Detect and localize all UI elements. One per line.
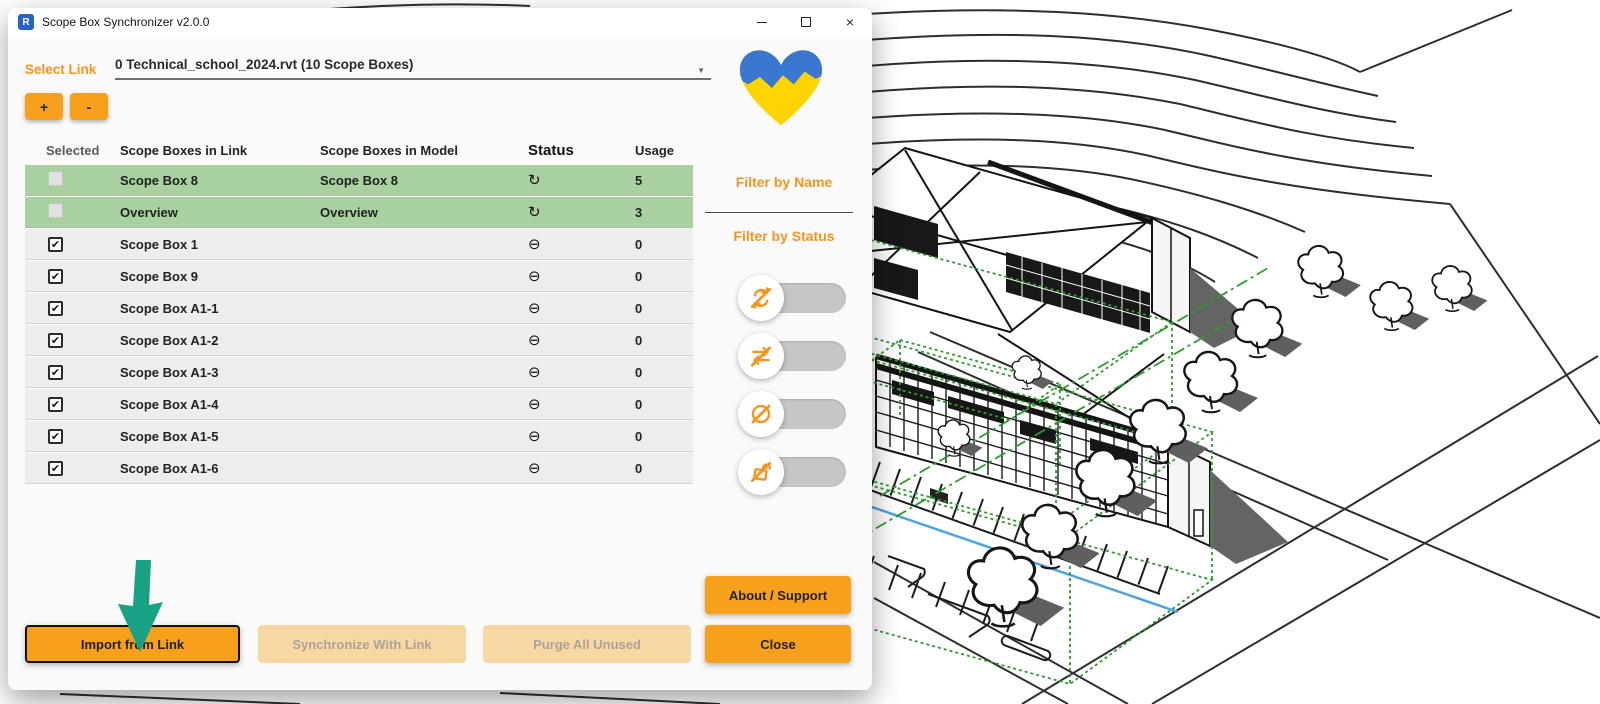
scope-box-table: Selected Scope Boxes in Link Scope Boxes…: [25, 135, 693, 485]
scope-box-link-name: Scope Box 8: [103, 173, 308, 188]
row-checkbox[interactable]: ✔: [48, 333, 63, 348]
toggle-thumb[interactable]: [738, 275, 784, 321]
table-row[interactable]: ✔Scope Box A1-5⊖0: [25, 421, 693, 452]
filter-not-visible-toggle[interactable]: [738, 391, 850, 437]
not-in-model-status-icon: ⊖: [483, 331, 573, 349]
toggle-thumb[interactable]: [738, 333, 784, 379]
row-checkbox[interactable]: ✔: [48, 397, 63, 412]
add-link-button[interactable]: +: [25, 93, 63, 120]
annotation-arrow-icon: [106, 560, 176, 656]
scope-box-link-name: Scope Box A1-4: [103, 397, 308, 412]
usage-count: 0: [573, 237, 693, 252]
scope-box-link-name: Overview: [103, 205, 308, 220]
window-title: Scope Box Synchronizer v2.0.0: [42, 15, 209, 29]
scope-box-model-name: Scope Box 8: [308, 173, 483, 188]
row-checkbox[interactable]: ✔: [48, 301, 63, 316]
table-row[interactable]: ✔Scope Box A1-4⊖0: [25, 389, 693, 420]
table-row[interactable]: ✔Scope Box A1-1⊖0: [25, 293, 693, 324]
minimize-button[interactable]: [740, 8, 784, 36]
scope-box-link-name: Scope Box A1-6: [103, 461, 308, 476]
select-link-label: Select Link: [25, 62, 96, 77]
scope-box-link-name: Scope Box 1: [103, 237, 308, 252]
row-checkbox[interactable]: ✔: [48, 237, 63, 252]
row-checkbox[interactable]: ✔: [48, 461, 63, 476]
filter-by-name-label[interactable]: Filter by Name: [705, 174, 863, 190]
not-in-model-status-icon: ⊖: [483, 267, 573, 285]
column-header-model: Scope Boxes in Model: [308, 143, 483, 158]
table-row[interactable]: ✔Scope Box 1⊖0: [25, 229, 693, 260]
usage-count: 0: [573, 461, 693, 476]
about-support-button[interactable]: About / Support: [705, 576, 851, 614]
scope-box-model-name: Overview: [308, 205, 483, 220]
usage-count: 0: [573, 333, 693, 348]
table-row[interactable]: Scope Box 8Scope Box 8↻5: [25, 165, 693, 196]
column-header-usage: Usage: [573, 143, 693, 158]
title-bar[interactable]: R Scope Box Synchronizer v2.0.0 ×: [8, 8, 872, 36]
unused-off-icon: [748, 459, 774, 485]
table-row[interactable]: ✔Scope Box A1-6⊖0: [25, 453, 693, 484]
scope-box-link-name: Scope Box A1-5: [103, 429, 308, 444]
not-in-model-status-icon: ⊖: [483, 459, 573, 477]
link-dropdown[interactable]: 0 Technical_school_2024.rvt (10 Scope Bo…: [115, 54, 711, 80]
scope-box-link-name: Scope Box A1-1: [103, 301, 308, 316]
minimize-icon: [757, 22, 767, 23]
panel-divider: [705, 212, 853, 213]
scope-box-link-name: Scope Box A1-3: [103, 365, 308, 380]
filter-by-status-label: Filter by Status: [705, 228, 863, 244]
table-row[interactable]: ✔Scope Box 9⊖0: [25, 261, 693, 292]
close-icon: ×: [846, 14, 854, 30]
maximize-button[interactable]: [784, 8, 828, 36]
usage-count: 5: [573, 173, 693, 188]
table-row[interactable]: ✔Scope Box A1-3⊖0: [25, 357, 693, 388]
row-checkbox: [48, 203, 63, 218]
not-in-model-status-icon: ⊖: [483, 427, 573, 445]
table-row[interactable]: ✔Scope Box A1-2⊖0: [25, 325, 693, 356]
purge-all-unused-button: Purge All Unused: [483, 625, 691, 663]
sync-off-icon: [748, 285, 774, 311]
synchronize-with-link-button: Synchronize With Link: [258, 625, 466, 663]
close-button[interactable]: ×: [828, 8, 872, 36]
row-checkbox[interactable]: ✔: [48, 365, 63, 380]
scope-box-synchronizer-window: R Scope Box Synchronizer v2.0.0 × Select…: [8, 8, 872, 690]
filter-swapped-toggle[interactable]: [738, 333, 850, 379]
column-header-status: Status: [483, 142, 573, 159]
not-in-model-status-icon: ⊖: [483, 363, 573, 381]
not-in-model-status-icon: ⊖: [483, 299, 573, 317]
scope-box-link-name: Scope Box 9: [103, 269, 308, 284]
synced-status-icon: ↻: [483, 203, 573, 221]
usage-count: 0: [573, 365, 693, 380]
ukraine-heart-icon: [735, 46, 827, 130]
toggle-thumb[interactable]: [738, 391, 784, 437]
scope-box-link-name: Scope Box A1-2: [103, 333, 308, 348]
app-icon: R: [18, 14, 34, 30]
column-header-link: Scope Boxes in Link: [103, 143, 308, 158]
table-row[interactable]: OverviewOverview↻3: [25, 197, 693, 228]
usage-count: 0: [573, 301, 693, 316]
maximize-icon: [801, 17, 811, 27]
table-header: Selected Scope Boxes in Link Scope Boxes…: [25, 135, 693, 165]
swap-off-icon: [748, 343, 774, 369]
synced-status-icon: ↻: [483, 171, 573, 189]
filter-synced-toggle[interactable]: [738, 275, 850, 321]
toggle-thumb[interactable]: [738, 449, 784, 495]
close-dialog-button[interactable]: Close: [705, 625, 851, 663]
visibility-off-icon: [748, 401, 774, 427]
chevron-down-icon: ▼: [697, 60, 705, 82]
not-in-model-status-icon: ⊖: [483, 395, 573, 413]
usage-count: 0: [573, 397, 693, 412]
not-in-model-status-icon: ⊖: [483, 235, 573, 253]
row-checkbox[interactable]: ✔: [48, 269, 63, 284]
link-dropdown-value: 0 Technical_school_2024.rvt (10 Scope Bo…: [115, 57, 413, 72]
row-checkbox: [48, 171, 63, 186]
usage-count: 0: [573, 269, 693, 284]
usage-count: 0: [573, 429, 693, 444]
status-filter-toggles: [738, 275, 850, 507]
column-header-selected: Selected: [25, 143, 103, 158]
usage-count: 3: [573, 205, 693, 220]
filter-unused-toggle[interactable]: [738, 449, 850, 495]
row-checkbox[interactable]: ✔: [48, 429, 63, 444]
remove-link-button[interactable]: -: [70, 93, 108, 120]
